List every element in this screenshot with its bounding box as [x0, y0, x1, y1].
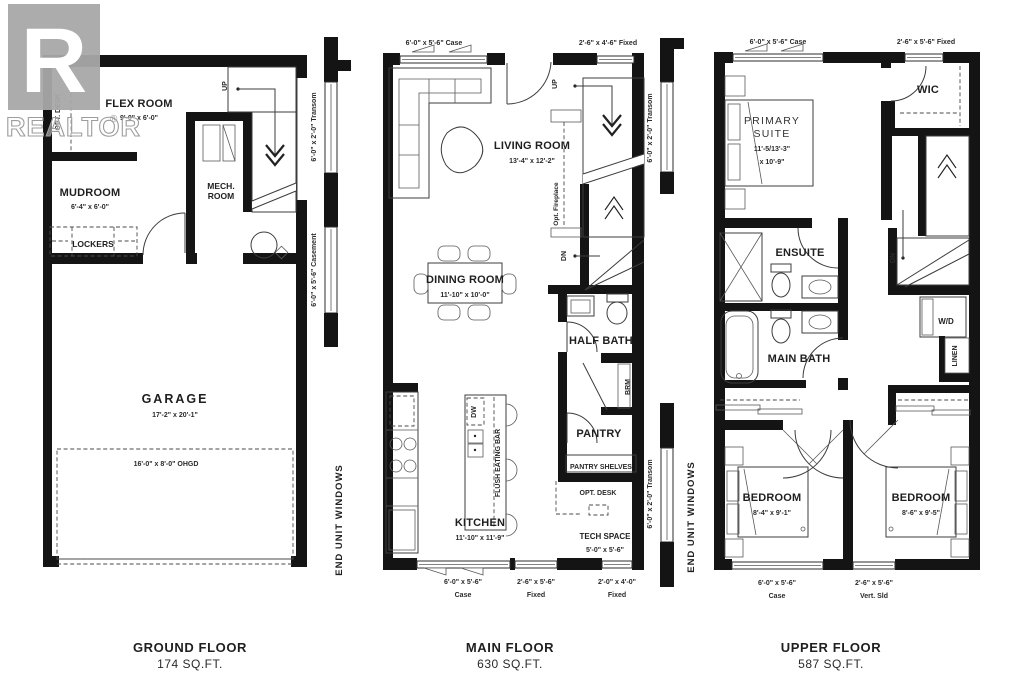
upper-floor-area: 587 SQ.FT. [798, 657, 864, 671]
mech-room-label-2: ROOM [208, 191, 234, 201]
burner [404, 438, 416, 450]
upper-win-b1-dims: 6'-0" x 5'-6" [758, 580, 796, 587]
main-window-top-left-label: 6'-0" x 5'-6" Case [406, 40, 463, 47]
nightstand [725, 189, 745, 209]
upper-floor-title: UPPER FLOOR [781, 640, 882, 655]
pantry-label: PANTRY [576, 428, 622, 440]
nightstand [725, 76, 745, 96]
pillow [728, 144, 740, 180]
bedroom-right: BEDROOM 8'-6" x 9'-5" [886, 447, 969, 557]
garage-dims: 17'-2" x 20'-1" [152, 412, 198, 419]
pillow [955, 504, 967, 534]
upper-win-b2-dims: 2'-6" x 5'-6" [855, 580, 893, 587]
kitchen: DW FLUSH EATING BAR KITCHEN 11'-10" x 11… [386, 392, 517, 553]
chair [468, 305, 490, 320]
up-label: UP [222, 81, 229, 91]
garage-label: GARAGE [142, 392, 209, 406]
pillow [955, 471, 967, 501]
dw-label: DW [471, 406, 478, 418]
nightstand [951, 539, 969, 557]
main-win-b2-dims: 2'-6" x 5'-6" [517, 579, 555, 586]
realtor-logo-letter: R [21, 10, 87, 112]
ensuite-label: ENSUITE [775, 247, 824, 259]
mech-room-label-1: MECH. [207, 181, 234, 191]
registered-mark: ® [110, 114, 118, 125]
fireplace-mantel [551, 110, 581, 122]
upper-stairs: DN [890, 136, 969, 287]
upper-dn-label: DN [890, 253, 897, 263]
chair [438, 305, 460, 320]
toilet-bowl [772, 273, 790, 297]
wic-label: WIC [917, 84, 939, 96]
bedroom-right-dims: 8'-6" x 9'-5" [902, 510, 940, 517]
main-bath-label: MAIN BATH [768, 353, 831, 365]
mech-room: MECH. ROOM [203, 125, 235, 201]
bypass-door [896, 406, 934, 411]
wd-label: W/D [938, 317, 954, 326]
chair [502, 274, 516, 294]
coffee-table [441, 127, 483, 173]
bedroom-left-dims: 8'-4" x 9'-1" [753, 510, 791, 517]
main-up-label: UP [552, 79, 559, 89]
vanity-sink [802, 311, 838, 333]
opt-desk-symbol [589, 505, 608, 515]
main-bottom-windows: 6'-0" x 5'-6" Case 2'-6" x 5'-6" Fixed 2… [417, 561, 636, 599]
half-bath: HALF BATH [567, 294, 633, 352]
main-floor-plan: 6'-0" x 5'-6" Case 2'-6" x 4'-6" Fixed L… [383, 38, 697, 599]
garage: GARAGE 17'-2" x 20'-1" 16'-0" x 8'-0" OH… [57, 392, 293, 564]
dining-room-dims: 11'-10" x 10'-0" [440, 292, 489, 299]
nightstand [725, 447, 743, 465]
main-win-b1-dims: 6'-0" x 5'-6" [444, 579, 482, 586]
ground-side-windows: 6'-0" x 2'-0" Transom 6'-0" x 5'-6" Case… [311, 37, 351, 576]
primary-suite-label-2: SUITE [754, 128, 791, 140]
realtor-watermark: R REALTOR ® [6, 4, 141, 142]
pantry: PANTRY PANTRY SHELVES [566, 413, 636, 472]
floor-plan-drawing: UP OPT. DESK FLEX ROOM 9'-0" x 6'-0" MUD… [0, 0, 1024, 689]
chair [438, 246, 460, 261]
casement-window-label: 6'-0" x 5'-6" Casement [311, 233, 318, 307]
nightstand [951, 447, 969, 465]
bypass-door [758, 409, 802, 414]
main-floor-area: 630 SQ.FT. [477, 657, 543, 671]
broom-closet: BRM [583, 363, 632, 410]
end-unit-windows-label-2: END UNIT WINDOWS [686, 461, 697, 573]
front-door-arc [507, 62, 551, 104]
brm-label: BRM [625, 379, 632, 395]
sectional-sofa [389, 68, 491, 198]
toilet-tank [771, 310, 791, 318]
living-room: LIVING ROOM 13'-4" x 12'-2" Opt. Firepla… [389, 68, 581, 237]
pillow [727, 504, 739, 534]
kitchen-dims: 11'-10" x 11'-9" [456, 535, 505, 542]
footer-titles: GROUND FLOOR 174 SQ.FT. MAIN FLOOR 630 S… [133, 640, 881, 671]
mech-equipment [203, 125, 220, 161]
transom-window-label: 6'-0" x 2'-0" Transom [311, 92, 318, 161]
upper-window-top-right-label: 2'-6" x 5'-6" Fixed [897, 39, 955, 46]
linen-label: LINEN [952, 346, 959, 367]
laundry-linen: W/D LINEN [920, 297, 969, 382]
main-win-b2-type: Fixed [527, 592, 545, 599]
toilet-tank [771, 264, 791, 272]
opt-desk-label-main: OPT. DESK [580, 490, 617, 497]
main-top-windows: 6'-0" x 5'-6" Case 2'-6" x 4'-6" Fixed [400, 40, 637, 104]
toilet-bowl [772, 319, 790, 343]
end-unit-windows-label: END UNIT WINDOWS [334, 464, 345, 576]
tech-space-dims: 5'-0" x 5'-6" [586, 547, 624, 554]
nightstand [725, 539, 743, 557]
floor-plan-sheet: UP OPT. DESK FLEX ROOM 9'-0" x 6'-0" MUD… [0, 0, 1024, 689]
wic: WIC [891, 66, 960, 126]
primary-suite-dims-2: x 10'-9" [760, 159, 785, 166]
burner [404, 460, 416, 472]
vanity-sink [802, 276, 838, 298]
dining-room: DINING ROOM 11'-10" x 10'-0" [414, 246, 516, 320]
living-room-label: LIVING ROOM [494, 140, 570, 152]
ensuite: ENSUITE [720, 228, 838, 301]
toilet-tank [607, 294, 628, 302]
entry-door-arc [143, 213, 185, 255]
living-room-dims: 13'-4" x 12'-2" [509, 158, 555, 165]
primary-suite-label-1: PRIMARY [744, 115, 800, 127]
closet-door-line [583, 363, 607, 410]
main-win-b1-type: Case [455, 592, 472, 599]
toilet-bowl [607, 302, 627, 324]
tech-space: OPT. DESK TECH SPACE 5'-0" x 5'-6" [556, 481, 631, 554]
main-side-windows: 6'-0" x 2'-0" Transom 6'-0" x 2'-0" Tran… [647, 38, 697, 587]
flush-eating-bar-label: FLUSH EATING BAR [495, 429, 502, 497]
upper-window-top-left-label: 6'-0" x 5'-6" Case [750, 39, 807, 46]
opt-fireplace-label: Opt. Fireplace [553, 182, 560, 226]
main-floor-title: MAIN FLOOR [466, 640, 554, 655]
bedroom-door-leaf [809, 430, 843, 464]
mudroom-dims: 6'-4" x 6'-0" [71, 204, 109, 211]
ground-floor-area: 174 SQ.FT. [157, 657, 223, 671]
kitchen-label: KITCHEN [455, 517, 505, 529]
chair [468, 246, 490, 261]
upper-win-b2-type: Vert. Sld [860, 593, 888, 600]
primary-bed [725, 100, 813, 186]
stair-up-arrow-icon [605, 197, 623, 219]
lockers-label: LOCKERS [72, 239, 114, 249]
transom-lower-label: 6'-0" x 2'-0" Transom [647, 459, 654, 528]
main-dn-label: DN [561, 251, 568, 261]
flex-room-label: FLEX ROOM [105, 98, 172, 110]
bedroom-right-label: BEDROOM [892, 492, 951, 504]
pillow [727, 471, 739, 501]
bedroom-door-leaf [783, 430, 817, 464]
bedroom-left-label: BEDROOM [743, 492, 802, 504]
bar-stools [506, 404, 517, 536]
garage-door-dims: 16'-0" x 8'-0" OHGD [134, 461, 199, 468]
half-bath-label: HALF BATH [569, 335, 633, 347]
dining-room-label: DINING ROOM [426, 274, 504, 286]
bedroom-door-leaf [864, 420, 898, 454]
main-win-b3-dims: 2'-0" x 4'-0" [598, 579, 636, 586]
primary-suite-dims-1: 11'-5/13'-3" [754, 146, 790, 153]
main-window-top-right-label: 2'-6" x 4'-6" Fixed [579, 40, 637, 47]
pantry-shelves-label: PANTRY SHELVES [570, 464, 632, 471]
mudroom-label: MUDROOM [60, 187, 121, 199]
bypass-door [932, 410, 970, 415]
ground-floor-title: GROUND FLOOR [133, 640, 247, 655]
main-win-b3-type: Fixed [608, 592, 626, 599]
bedroom-left: BEDROOM 8'-4" x 9'-1" [725, 447, 808, 557]
pillow [728, 104, 740, 140]
upper-bottom-windows: 6'-0" x 5'-6" Case 2'-6" x 5'-6" Vert. S… [732, 562, 895, 600]
realtor-watermark-text: REALTOR [6, 112, 141, 142]
main-bath: MAIN BATH [721, 310, 843, 383]
upper-win-b1-type: Case [769, 593, 786, 600]
stair-up-arrow-icon [938, 155, 956, 178]
upper-floor-plan: 6'-0" x 5'-6" Case 2'-6" x 5'-6" Fixed P… [714, 39, 980, 600]
tech-space-label: TECH SPACE [580, 532, 632, 541]
primary-suite: PRIMARY SUITE 11'-5/13'-3" x 10'-9" [725, 76, 813, 209]
garage-door-opening [57, 559, 293, 564]
transom-upper-label: 6'-0" x 2'-0" Transom [647, 93, 654, 162]
